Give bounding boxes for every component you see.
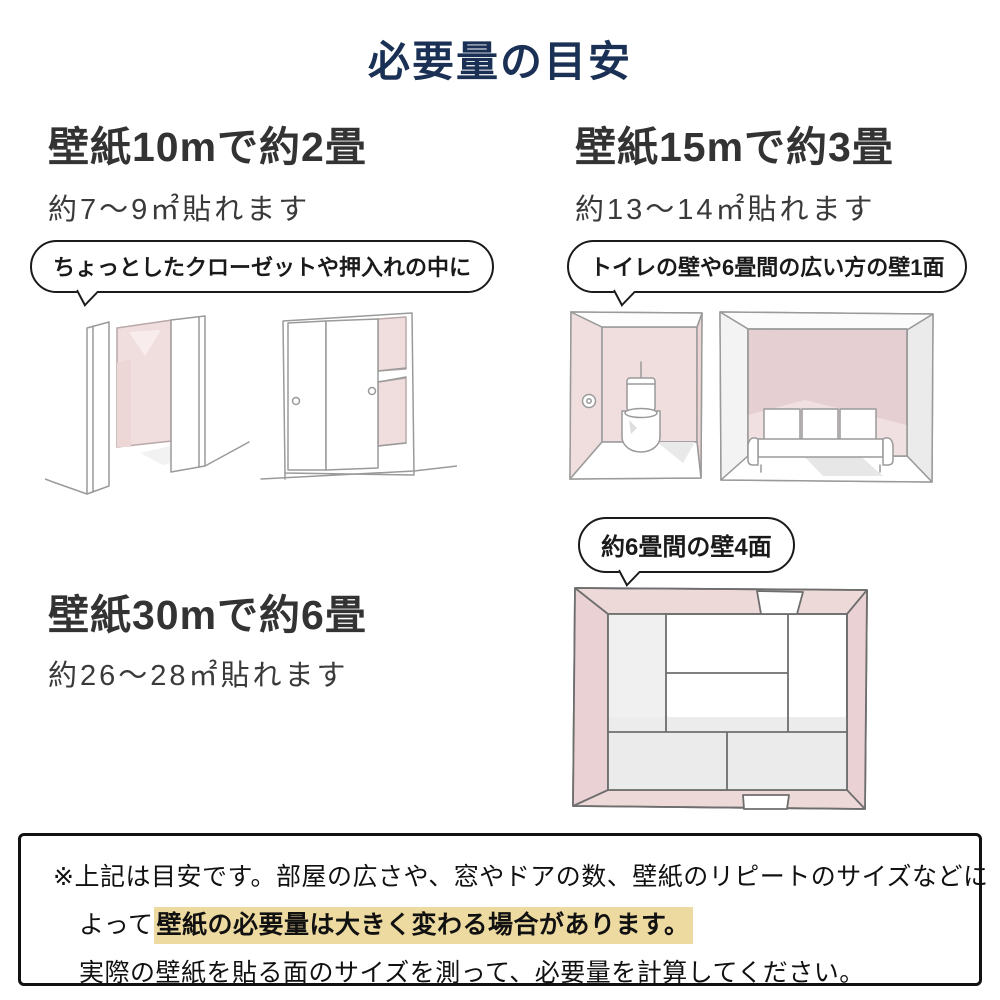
six-tatami-bubble: 約6畳間の壁4面 (578, 517, 795, 573)
section-15m-heading: 壁紙15mで約3畳 (575, 125, 894, 170)
note-line-2: よって壁紙の必要量は大きく変わる場合があります。 (79, 901, 959, 949)
room-illustrations (565, 300, 940, 492)
note-line-2-prefix: よって (79, 911, 154, 939)
section-10m-heading: 壁紙10mで約2畳 (48, 125, 367, 170)
section-15m-bubble-label: トイレの壁や6畳間の広い方の壁1面 (590, 255, 944, 280)
page-title: 必要量の目安 (0, 28, 1000, 89)
note-line-2-highlight: 壁紙の必要量は大きく変わる場合があります。 (154, 907, 693, 944)
section-15m-bubble: トイレの壁や6畳間の広い方の壁1面 (567, 240, 967, 293)
section-15m-subtext: 約13〜14㎡貼れます (575, 186, 876, 228)
sofa-room-illustration (720, 312, 933, 482)
closet-illustrations (45, 303, 457, 500)
section-10m-bubble: ちょっとしたクローゼットや押入れの中に (30, 240, 494, 293)
six-tatami-bubble-label: 約6畳間の壁4面 (601, 534, 772, 561)
note-line-1: ※上記は目安です。部屋の広さや、窓やドアの数、壁紙のリピートのサイズなどに (79, 853, 959, 901)
section-30m-heading: 壁紙30mで約6畳 (48, 593, 367, 638)
sliding-closet-illustration (261, 313, 457, 479)
section-10m-bubble-label: ちょっとしたクローゼットや押入れの中に (53, 255, 471, 280)
open-closet-illustration (45, 316, 249, 494)
section-30m-subtext: 約26〜28㎡貼れます (48, 652, 349, 694)
toilet-room-illustration (570, 312, 702, 479)
note-box: ※上記は目安です。部屋の広さや、窓やドアの数、壁紙のリピートのサイズなどに よっ… (18, 833, 982, 986)
note-line-3: 実際の壁紙を貼る面のサイズを測って、必要量を計算してください。 (79, 949, 959, 997)
six-tatami-room-illustration (570, 582, 872, 814)
section-10m-subtext: 約7〜9㎡貼れます (48, 186, 310, 228)
